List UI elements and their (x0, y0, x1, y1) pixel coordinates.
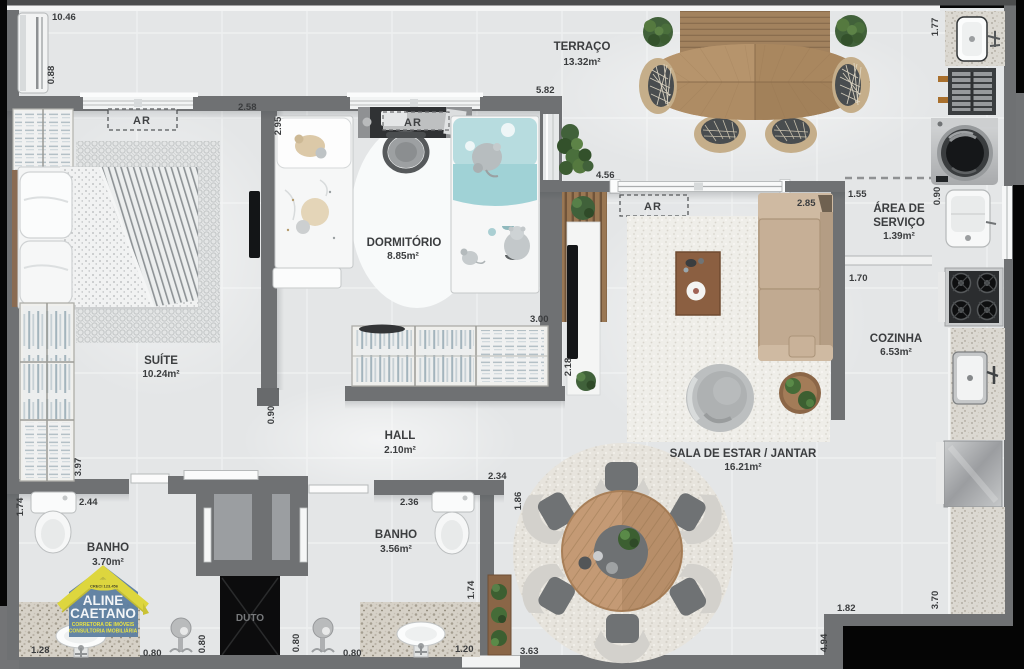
svg-text:ÁREA DE: ÁREA DE (873, 202, 925, 215)
svg-text:0.80: 0.80 (143, 648, 162, 659)
svg-text:1.77: 1.77 (930, 18, 941, 37)
svg-text:CONSULTORIA IMOBILIÁRIA: CONSULTORIA IMOBILIÁRIA (69, 628, 138, 635)
svg-text:3.70m²: 3.70m² (92, 557, 124, 568)
svg-text:CAETANO: CAETANO (70, 606, 136, 621)
svg-text:1.70: 1.70 (849, 273, 868, 284)
svg-text:0.80: 0.80 (197, 635, 208, 654)
svg-text:0.88: 0.88 (46, 66, 57, 85)
svg-text:AR: AR (404, 117, 422, 129)
svg-text:BANHO: BANHO (375, 529, 417, 541)
svg-text:2.95: 2.95 (273, 116, 284, 135)
svg-text:BANHO: BANHO (87, 542, 129, 554)
svg-text:5.82: 5.82 (536, 85, 555, 96)
svg-text:8.85m²: 8.85m² (387, 251, 419, 262)
svg-text:2.18: 2.18 (563, 358, 574, 377)
svg-text:4.94: 4.94 (819, 633, 830, 652)
svg-text:2.44: 2.44 (79, 497, 98, 508)
svg-text:AR: AR (644, 201, 662, 213)
svg-text:SALA DE ESTAR / JANTAR: SALA DE ESTAR / JANTAR (670, 448, 817, 460)
svg-text:HALL: HALL (385, 430, 416, 442)
svg-text:1.82: 1.82 (837, 603, 856, 614)
svg-text:2.85: 2.85 (797, 198, 816, 209)
svg-text:4.56: 4.56 (596, 170, 615, 181)
svg-text:1.55: 1.55 (848, 189, 867, 200)
svg-text:DUTO: DUTO (236, 613, 264, 624)
svg-text:SUÍTE: SUÍTE (144, 354, 178, 367)
svg-text:1.20: 1.20 (455, 644, 474, 655)
svg-text:3.70: 3.70 (930, 591, 941, 610)
svg-text:3.97: 3.97 (73, 458, 84, 477)
svg-text:0.80: 0.80 (291, 634, 302, 653)
svg-text:10.46: 10.46 (52, 12, 76, 23)
svg-text:3.63: 3.63 (520, 646, 539, 657)
svg-text:CORRETORA DE IMÓVEIS: CORRETORA DE IMÓVEIS (72, 620, 135, 628)
svg-text:1.28: 1.28 (31, 645, 50, 656)
svg-text:6.53m²: 6.53m² (880, 347, 912, 358)
svg-text:3.56m²: 3.56m² (380, 544, 412, 555)
svg-text:13.32m²: 13.32m² (563, 57, 601, 68)
svg-text:AR: AR (133, 115, 151, 127)
svg-text:2.58: 2.58 (238, 102, 257, 113)
svg-text:2.10m²: 2.10m² (384, 445, 416, 456)
svg-text:0.80: 0.80 (343, 648, 362, 659)
svg-text:2.36: 2.36 (400, 497, 419, 508)
svg-text:1.86: 1.86 (513, 492, 524, 511)
svg-text:SERVIÇO: SERVIÇO (873, 217, 925, 229)
svg-text:2.34: 2.34 (488, 471, 507, 482)
svg-text:1.74: 1.74 (466, 580, 477, 599)
svg-text:DORMITÓRIO: DORMITÓRIO (367, 236, 442, 249)
svg-text:1.39m²: 1.39m² (883, 231, 915, 242)
svg-text:TERRAÇO: TERRAÇO (554, 41, 611, 53)
svg-text:1.74: 1.74 (15, 497, 26, 516)
svg-text:3.00: 3.00 (530, 314, 549, 325)
svg-text:10.24m²: 10.24m² (142, 369, 180, 380)
svg-text:0.90: 0.90 (932, 187, 943, 206)
svg-text:0.90: 0.90 (266, 406, 277, 425)
svg-text:COZINHA: COZINHA (870, 333, 922, 345)
svg-text:CRECI 123.456: CRECI 123.456 (90, 584, 119, 589)
svg-text:16.21m²: 16.21m² (724, 462, 762, 473)
